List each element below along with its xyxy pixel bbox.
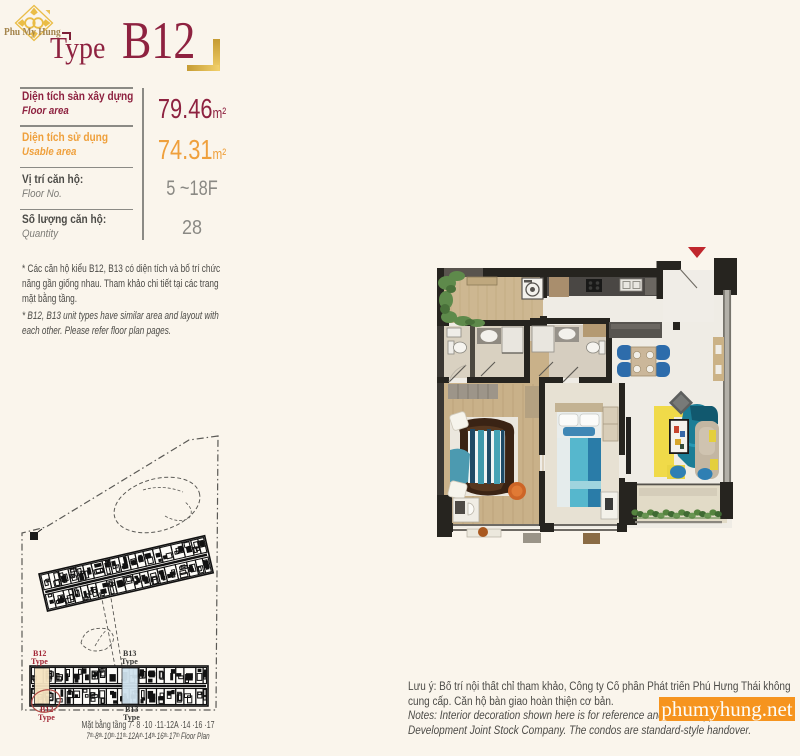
svg-text:Type: Type (121, 657, 138, 666)
svg-text:Type: Type (38, 713, 55, 722)
svg-text:Type: Type (31, 657, 48, 666)
